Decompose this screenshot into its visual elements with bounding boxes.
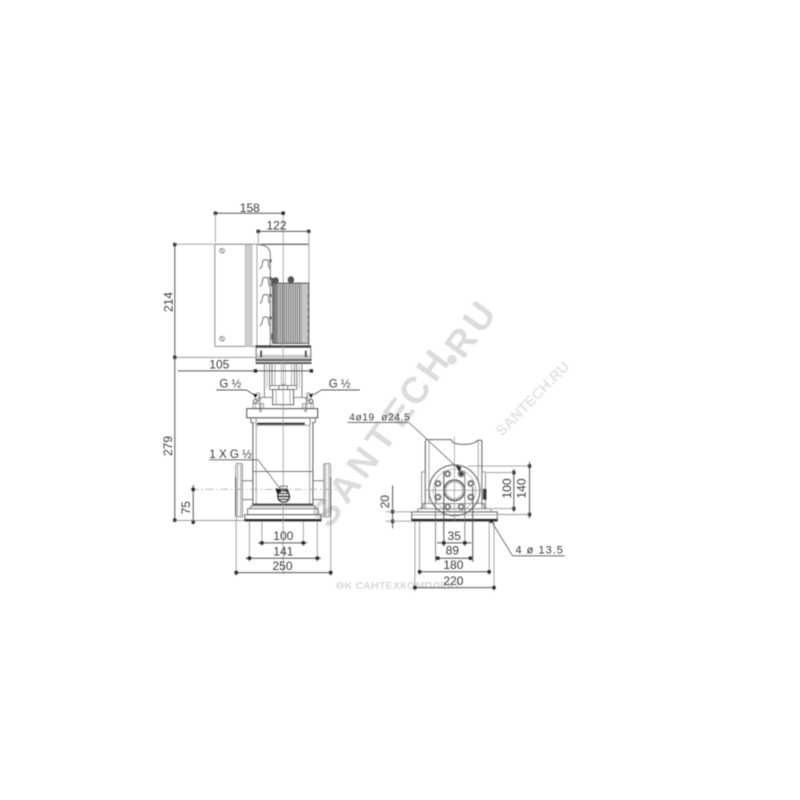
svg-text:140: 140 xyxy=(514,478,528,498)
svg-text:141: 141 xyxy=(273,544,293,558)
svg-text:89: 89 xyxy=(446,544,460,558)
svg-text:35: 35 xyxy=(448,529,462,543)
svg-text:220: 220 xyxy=(443,574,463,588)
svg-text:1 X G ½: 1 X G ½ xyxy=(209,448,252,461)
svg-text:250: 250 xyxy=(272,559,292,573)
svg-text:20: 20 xyxy=(378,495,392,509)
svg-text:75: 75 xyxy=(179,501,193,515)
svg-text:279: 279 xyxy=(161,436,175,456)
svg-text:105: 105 xyxy=(209,358,229,372)
svg-text:214: 214 xyxy=(162,292,176,312)
svg-text:100: 100 xyxy=(273,529,293,543)
svg-text:180: 180 xyxy=(443,558,463,572)
svg-text:100: 100 xyxy=(500,478,514,498)
svg-text:G ½: G ½ xyxy=(329,378,351,391)
svg-text:158: 158 xyxy=(240,201,260,215)
svg-text:122: 122 xyxy=(266,218,286,232)
svg-text:4 ø 13.5: 4 ø 13.5 xyxy=(516,545,564,557)
svg-text:G ½: G ½ xyxy=(219,378,241,391)
